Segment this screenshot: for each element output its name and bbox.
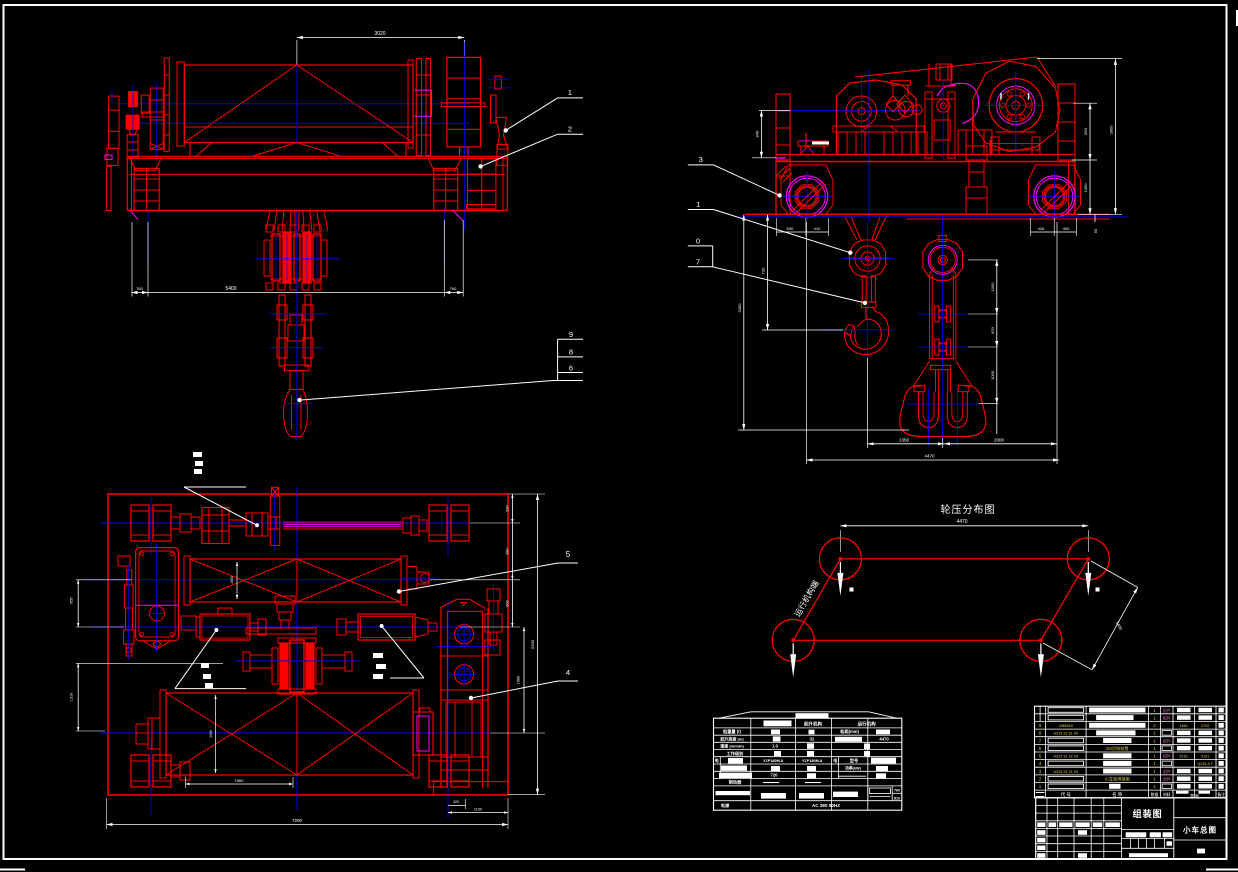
svg-text:700: 700 — [761, 267, 766, 274]
svg-text:型号: 型号 — [850, 757, 858, 764]
svg-text:起升高度 (m): 起升高度 (m) — [719, 736, 744, 742]
svg-text:Q235-A F: Q235-A F — [1198, 762, 1214, 766]
svg-text:9: 9 — [569, 330, 573, 339]
svg-text:组装图: 组装图 — [1133, 808, 1163, 819]
svg-text:运行机构: 运行机构 — [858, 721, 876, 728]
svg-text:YZP180M-8: YZP180M-8 — [802, 759, 822, 763]
svg-text:备注: 备注 — [1217, 792, 1225, 797]
svg-text:3020: 3020 — [374, 31, 385, 37]
svg-text:620: 620 — [990, 326, 995, 333]
svg-text:数量: 数量 — [1151, 792, 1159, 797]
svg-text:760: 760 — [894, 789, 900, 793]
svg-text:4470: 4470 — [956, 519, 967, 525]
svg-text:A315 31 32 00: A315 31 32 00 — [1053, 755, 1078, 759]
svg-text:5400: 5400 — [225, 286, 236, 292]
svg-text:GB8918: GB8918 — [1059, 724, 1073, 728]
svg-text:组件: 组件 — [1163, 754, 1171, 759]
svg-text:840: 840 — [754, 130, 759, 137]
svg-text:速度 (m/min): 速度 (m/min) — [720, 743, 744, 749]
svg-text:小车总图: 小车总图 — [1183, 825, 1217, 835]
svg-text:功率(kW): 功率(kW) — [845, 766, 862, 771]
svg-text:电: 电 — [715, 757, 719, 763]
svg-text:电源: 电源 — [721, 802, 730, 809]
svg-text:400: 400 — [1063, 226, 1070, 231]
svg-text:轮压分布图: 轮压分布图 — [941, 503, 996, 516]
svg-text:855: 855 — [70, 597, 74, 603]
svg-text:材料: 材料 — [1163, 792, 1171, 797]
svg-text:轨距(mm): 轨距(mm) — [840, 728, 859, 735]
svg-text:起升机构: 起升机构 — [803, 721, 822, 728]
svg-text:组件: 组件 — [1163, 708, 1171, 713]
svg-text:1: 1 — [568, 88, 572, 97]
svg-text:1000: 1000 — [990, 282, 995, 292]
svg-text:760: 760 — [136, 286, 143, 291]
svg-text:5161: 5161 — [1201, 755, 1209, 759]
svg-text:2800: 2800 — [1108, 125, 1113, 135]
svg-text:组件: 组件 — [1163, 769, 1171, 774]
svg-text:7: 7 — [696, 258, 700, 267]
svg-text:代 号: 代 号 — [1061, 791, 1072, 798]
svg-text:1980: 1980 — [517, 676, 521, 684]
svg-text:1400: 1400 — [209, 730, 213, 738]
svg-text:2: 2 — [568, 125, 572, 134]
svg-text:3: 3 — [699, 155, 703, 164]
svg-text:制动器: 制动器 — [729, 779, 742, 786]
svg-text:组件: 组件 — [1163, 777, 1171, 782]
svg-text:4470: 4470 — [924, 454, 935, 459]
svg-text:4: 4 — [566, 668, 570, 677]
svg-text:7200: 7200 — [292, 818, 303, 823]
svg-text:A315 31 31 00: A315 31 31 00 — [1053, 770, 1078, 774]
svg-text:410: 410 — [814, 226, 821, 231]
svg-text:0: 0 — [696, 237, 700, 246]
svg-text:950: 950 — [1083, 127, 1088, 134]
svg-text:起重量 (t): 起重量 (t) — [722, 728, 742, 735]
svg-text:1000: 1000 — [990, 370, 995, 380]
svg-text:6: 6 — [569, 364, 573, 373]
svg-text:工作级别: 工作级别 — [727, 750, 744, 757]
svg-text:AC 380 50HZ: AC 380 50HZ — [812, 803, 840, 808]
svg-text:1881: 1881 — [1180, 724, 1188, 728]
svg-text:520: 520 — [506, 505, 510, 511]
svg-text:电: 电 — [833, 757, 837, 763]
svg-text:1050: 1050 — [1083, 183, 1088, 193]
svg-text:组件: 组件 — [1163, 715, 1171, 720]
svg-text:组件: 组件 — [1163, 738, 1171, 743]
svg-text:1350: 1350 — [899, 438, 910, 443]
svg-text:1100: 1100 — [474, 808, 482, 812]
svg-text:4470: 4470 — [879, 737, 889, 742]
svg-text:名 称: 名 称 — [1112, 791, 1123, 798]
svg-text:32: 32 — [810, 737, 815, 742]
svg-text:1.0: 1.0 — [772, 744, 778, 749]
svg-text:25t吊钩装置: 25t吊钩装置 — [1106, 745, 1129, 752]
svg-text:YZP180M-8: YZP180M-8 — [763, 759, 783, 763]
svg-text:320: 320 — [453, 800, 459, 804]
svg-text:990: 990 — [506, 548, 510, 554]
svg-text:1650: 1650 — [230, 576, 234, 584]
svg-text:530: 530 — [787, 226, 794, 231]
svg-text:760: 760 — [450, 286, 457, 291]
svg-text:A315 31 61 00: A315 31 61 00 — [1053, 732, 1078, 736]
svg-text:1: 1 — [696, 200, 700, 209]
svg-text:426: 426 — [1038, 226, 1045, 231]
svg-text:5390: 5390 — [530, 639, 535, 649]
svg-text:3400: 3400 — [737, 303, 742, 313]
svg-text:8: 8 — [569, 348, 573, 357]
svg-text:1310: 1310 — [70, 693, 74, 701]
svg-text:2702: 2702 — [1201, 724, 1209, 728]
svg-text:810: 810 — [894, 796, 900, 800]
svg-text:2000: 2000 — [994, 438, 1005, 443]
svg-text:50: 50 — [1093, 228, 1098, 233]
svg-text:800: 800 — [506, 600, 510, 606]
svg-text:5161: 5161 — [1180, 755, 1188, 759]
svg-text:5: 5 — [566, 550, 571, 559]
svg-text:720: 720 — [771, 773, 779, 778]
svg-text:1960: 1960 — [235, 778, 245, 783]
svg-text:小车架焊接图: 小车架焊接图 — [1105, 776, 1130, 783]
